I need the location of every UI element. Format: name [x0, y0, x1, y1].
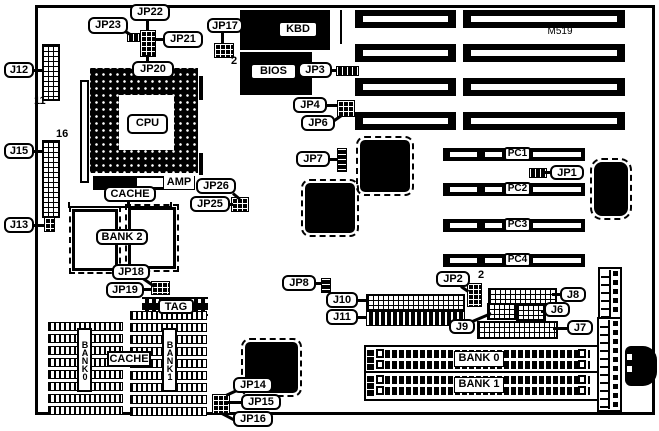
pci-slot-notch	[533, 223, 581, 228]
leader-j11	[357, 316, 366, 319]
callout-jp14: JP14	[233, 377, 273, 393]
simm-clip	[376, 360, 384, 369]
callout-j10: J10	[326, 292, 358, 308]
callout-jp17: JP17	[207, 18, 243, 33]
j12-pin-number: 11	[34, 95, 46, 107]
din-pin-notch	[627, 354, 632, 360]
cache-bottom-label: CACHE	[107, 351, 151, 367]
keyboard-controller-chip: KBD	[240, 10, 330, 50]
simm-clip	[376, 386, 384, 395]
callout-j11: J11	[326, 309, 358, 325]
simm-clip	[376, 375, 384, 384]
leader-j7	[553, 327, 567, 330]
leader-j12	[33, 69, 43, 72]
cpu-socket-center: CPU	[119, 95, 174, 150]
socket-lever-bottom	[199, 153, 203, 175]
pci-slot-notch	[450, 223, 477, 228]
amp-label: AMP	[164, 176, 194, 189]
simm-clip	[578, 349, 586, 358]
leader-jp17	[221, 33, 224, 43]
brace-tick-right	[170, 202, 172, 208]
model-label: M519	[530, 26, 590, 37]
pci-slot-notch	[450, 152, 477, 157]
isa-slot-4-short	[355, 112, 456, 130]
leader-jp4	[326, 104, 337, 107]
pci-slot-pc2: PC2	[443, 183, 585, 196]
callout-j9: J9	[449, 319, 475, 334]
jumper-jp20-block	[140, 30, 156, 57]
isa-slot-4-long	[463, 112, 625, 130]
pci-slot-notch	[533, 187, 581, 192]
leader-jp21	[155, 38, 163, 41]
callout-jp4: JP4	[293, 97, 327, 113]
pc3-label: PC3	[504, 218, 531, 232]
isa-slot-2-long	[463, 44, 625, 62]
isa-slot-1-short	[355, 10, 456, 28]
callout-jp26: JP26	[196, 178, 236, 194]
connector-j9	[487, 303, 517, 320]
cache-chip	[130, 407, 207, 416]
cache-bank0-vertical-label: BANK0	[77, 328, 92, 392]
power-connector-lower	[597, 317, 622, 412]
leader-j13	[33, 224, 44, 227]
callout-jp3: JP3	[298, 62, 332, 78]
callout-jp19: JP19	[106, 282, 144, 298]
callout-cache-top: CACHE	[104, 186, 156, 202]
cache-chip	[48, 394, 123, 403]
brace-tick-left	[68, 202, 70, 208]
callout-j15: J15	[4, 143, 34, 159]
pci-slot-notch	[485, 258, 502, 263]
simm-bank1-sockets: BANK 1	[364, 371, 602, 401]
simm-clip	[578, 360, 586, 369]
leader-jp7	[329, 158, 337, 161]
cache-chip	[130, 395, 207, 404]
callout-jp25: JP25	[190, 196, 230, 212]
simm-clip	[376, 349, 384, 358]
bios-label: BIOS	[251, 64, 296, 79]
simm-end-pins	[367, 349, 374, 370]
pci-slot-pc1: PC1	[443, 148, 585, 161]
simm-end-pins	[367, 375, 374, 396]
connector-j12	[42, 44, 60, 101]
pci-slot-pc4: PC4	[443, 254, 585, 267]
isa-slot-2-short	[355, 44, 456, 62]
jp17-pin1-number: 2	[231, 55, 237, 67]
keyboard-din-connector	[625, 346, 657, 386]
jp2-pin1-number: 2	[478, 269, 484, 281]
leader-jp19	[144, 288, 152, 291]
callout-jp23: JP23	[88, 17, 128, 34]
connector-j15	[42, 140, 60, 218]
leader-jp22	[146, 21, 149, 30]
callout-jp6: JP6	[301, 115, 335, 131]
jumper-jp8-block	[321, 278, 331, 293]
callout-j8: J8	[560, 287, 586, 302]
callout-j12: J12	[4, 62, 34, 78]
socket-lever-top	[199, 76, 203, 100]
pc1-label: PC1	[504, 147, 531, 161]
pci-slot-notch	[485, 187, 502, 192]
brace-line	[68, 206, 172, 208]
callout-j6: J6	[544, 302, 570, 317]
pci-slot-notch	[533, 152, 581, 157]
leader-jp15	[228, 401, 241, 404]
callout-jp15: JP15	[241, 394, 281, 410]
leader-j10	[357, 299, 366, 302]
din-pin-notch	[627, 366, 632, 372]
callout-bank2: BANK 2	[96, 229, 148, 245]
motherboard-diagram: M519 KBD BIOS JP23 JP22 JP21 JP20 JP17 2…	[0, 0, 659, 431]
simm-bank0-label: BANK 0	[454, 351, 504, 367]
connector-j10	[366, 294, 465, 311]
cache-bank1-vertical-label: BANK1	[162, 328, 177, 392]
callout-jp21: JP21	[163, 31, 203, 48]
cpu-label: CPU	[127, 114, 168, 134]
simm-bank1-label: BANK 1	[454, 377, 504, 393]
callout-jp18: JP18	[112, 264, 150, 280]
simm-clip	[578, 386, 586, 395]
callout-jp22: JP22	[130, 4, 170, 21]
cache-chip	[48, 406, 123, 415]
jumper-jp25-jp26-block	[231, 197, 249, 212]
callout-jp7: JP7	[296, 151, 330, 167]
callout-jp1: JP1	[550, 165, 584, 180]
callout-j13: J13	[4, 217, 34, 233]
leader-j15	[33, 150, 43, 153]
clock-chip	[594, 162, 628, 216]
tag-label: TAG	[158, 299, 194, 314]
j15-pin-number: 16	[56, 128, 68, 140]
connector-j13	[44, 217, 55, 232]
callout-jp20: JP20	[132, 61, 174, 78]
connector-j7	[477, 321, 558, 339]
jumper-jp18-jp19-block	[151, 281, 170, 295]
power-connector-upper	[598, 267, 622, 320]
pci-slot-notch	[450, 187, 477, 192]
jumper-jp7-block	[337, 148, 347, 172]
callout-jp8: JP8	[282, 275, 316, 291]
isa-slot-3-long	[463, 78, 625, 96]
jumper-jp14-16-block	[212, 394, 230, 414]
pc2-label: PC2	[504, 182, 531, 196]
pc4-label: PC4	[504, 253, 531, 267]
isa-slot-3-short	[355, 78, 456, 96]
pci-slot-notch	[533, 258, 581, 263]
jumper-jp2-block	[467, 283, 482, 307]
pci-slot-notch	[485, 223, 502, 228]
jumper-jp3-block	[336, 66, 359, 76]
chipset-chip-upper	[360, 140, 410, 192]
chipset-chip-lower	[305, 183, 355, 233]
trace-line	[340, 10, 342, 44]
pci-slot-pc3: PC3	[443, 219, 585, 232]
voltage-regulator	[80, 80, 89, 183]
cpu-socket: CPU	[90, 68, 198, 173]
callout-jp2: JP2	[436, 271, 470, 287]
pci-slot-notch	[450, 258, 477, 263]
callout-j7: J7	[567, 320, 593, 335]
kbd-label: KBD	[279, 22, 317, 37]
simm-clip	[578, 375, 586, 384]
pci-slot-notch	[485, 152, 502, 157]
callout-jp16: JP16	[233, 411, 273, 427]
